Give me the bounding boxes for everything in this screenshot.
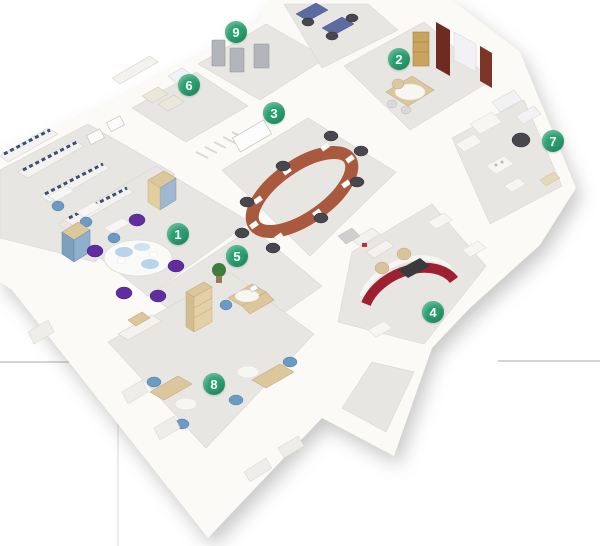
room-marker-5[interactable]: 5 [226, 245, 248, 267]
room-marker-6[interactable]: 6 [178, 74, 200, 96]
floorplan-illustration [0, 0, 600, 546]
room-marker-9[interactable]: 9 [225, 21, 247, 43]
room-marker-8[interactable]: 8 [203, 373, 225, 395]
room-marker-4[interactable]: 4 [422, 301, 444, 323]
room-marker-3[interactable]: 3 [263, 102, 285, 124]
room-marker-2[interactable]: 2 [388, 48, 410, 70]
floor-plan-stage: 123456789 [0, 0, 600, 546]
room-marker-1[interactable]: 1 [167, 223, 189, 245]
room-marker-7[interactable]: 7 [542, 130, 564, 152]
